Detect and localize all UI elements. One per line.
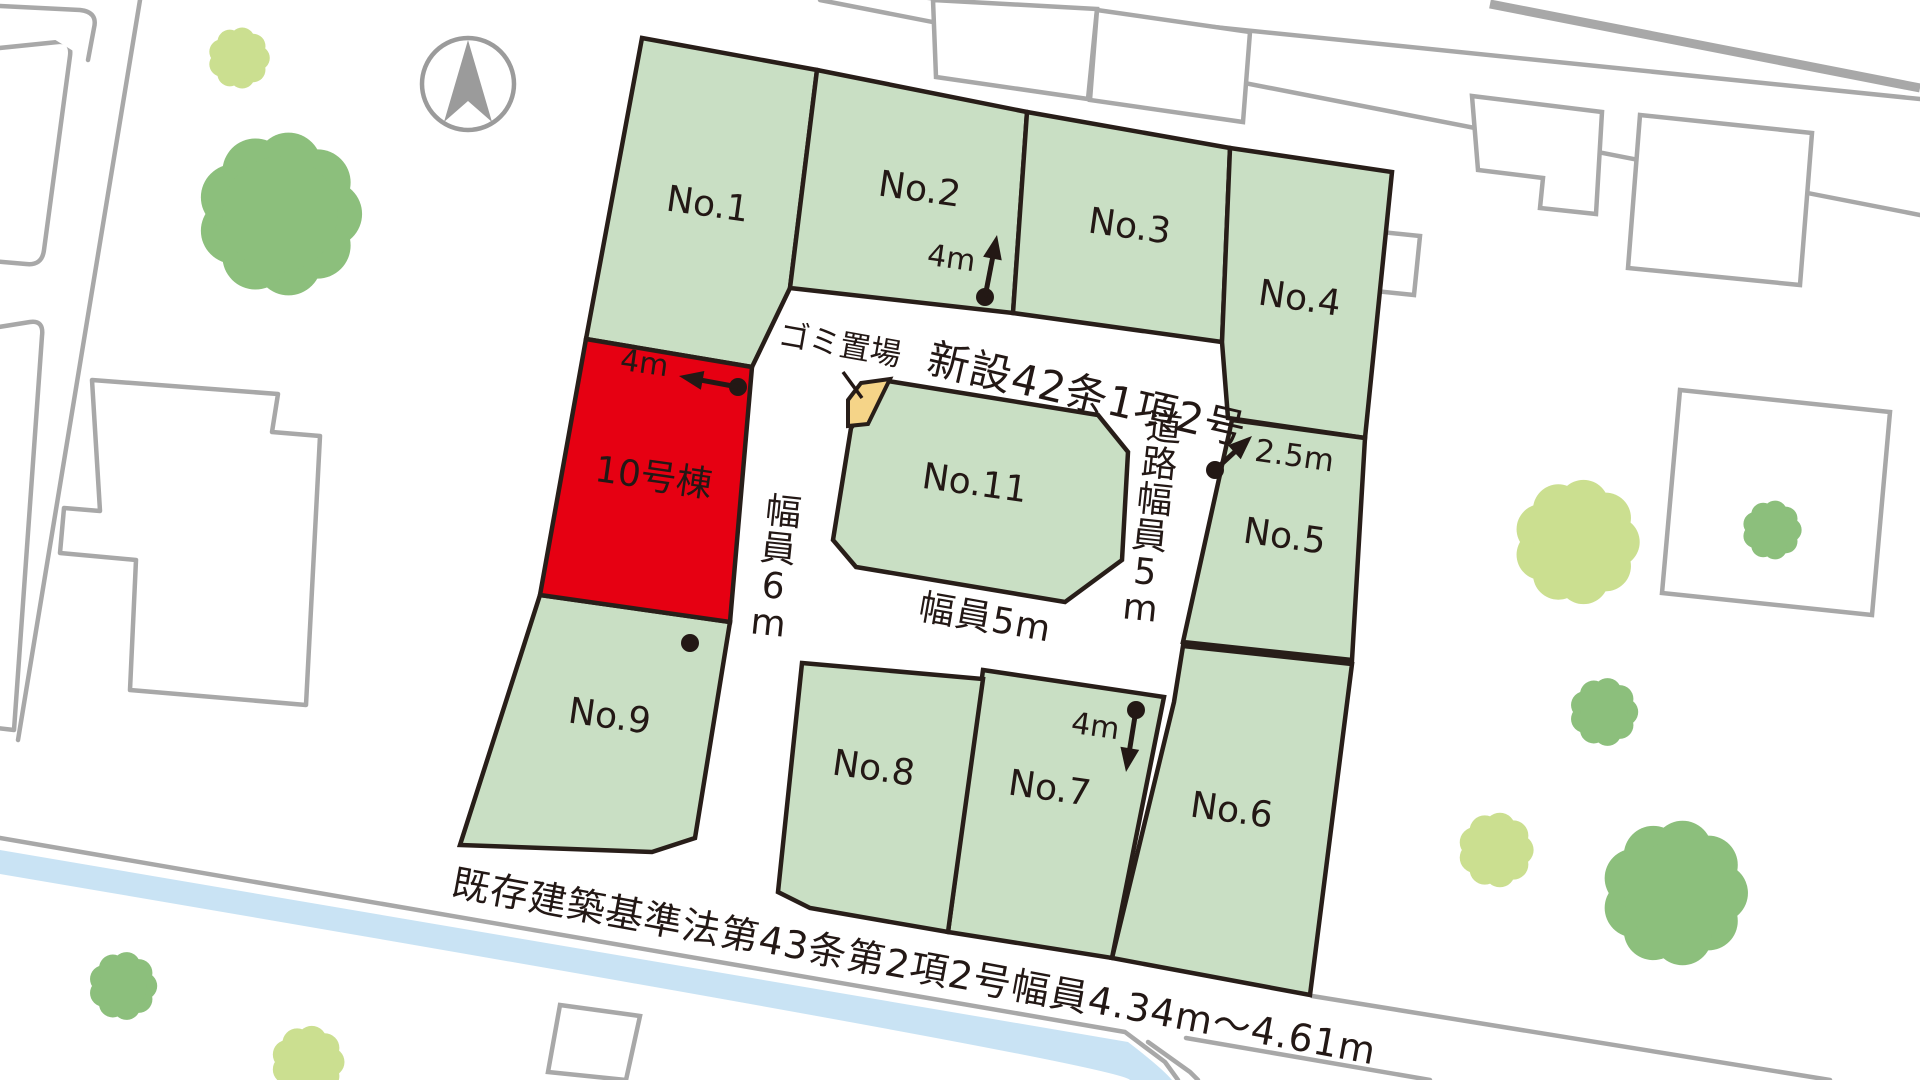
background-parcel [60, 380, 320, 705]
tree-core [1533, 498, 1621, 586]
road-width-5m-vertical: m [1121, 586, 1160, 630]
tree-core [1470, 824, 1523, 877]
road-width-6m-vertical: m [749, 601, 788, 645]
background-building [933, 0, 1097, 99]
tree-core [1751, 509, 1793, 551]
site-plan-svg: No.1No.2No.3No.4No.5No.6No.7No.8No.910号棟… [0, 0, 1920, 1080]
tree-icon [209, 27, 269, 88]
background-parcel [0, 42, 70, 264]
tree-core [1624, 842, 1726, 944]
background-building [1090, 10, 1250, 122]
measure-label: 4m [618, 343, 671, 384]
measure-label: 4m [925, 238, 978, 279]
background-building [548, 1005, 640, 1080]
north-arrow-icon [444, 40, 492, 122]
tree-core [222, 156, 337, 271]
tree-icon [1517, 480, 1640, 604]
tree-core [217, 36, 260, 79]
tree-icon [90, 952, 157, 1020]
tree-core [99, 962, 147, 1010]
tree-icon [1460, 813, 1534, 888]
lot-no8 [778, 663, 983, 932]
measure-label: 4m [1069, 706, 1122, 747]
tree-core [1580, 688, 1628, 736]
background-parcel [0, 322, 42, 730]
background-road-line [1312, 996, 1830, 1080]
site-plan-page: No.1No.2No.3No.4No.5No.6No.7No.8No.910号棟… [0, 0, 1920, 1080]
tree-icon [1605, 821, 1748, 966]
compass-rose [422, 38, 514, 130]
background-building [1628, 115, 1812, 285]
tree-icon [273, 1026, 345, 1080]
tree-icon [1571, 678, 1638, 746]
garbage-label: ゴミ置場 [776, 317, 904, 374]
boundary-point-dot [681, 634, 699, 652]
tree-icon [201, 133, 362, 296]
background-building [1472, 96, 1602, 214]
